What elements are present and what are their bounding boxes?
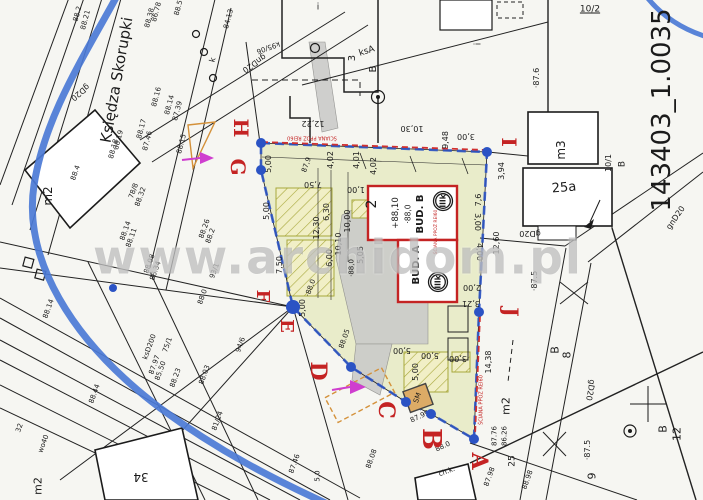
site-plan-map: 88.288.2188.3886.7888.584.1388.1688.1487…: [0, 0, 703, 500]
watermark: www.archidom.pl: [93, 231, 583, 286]
